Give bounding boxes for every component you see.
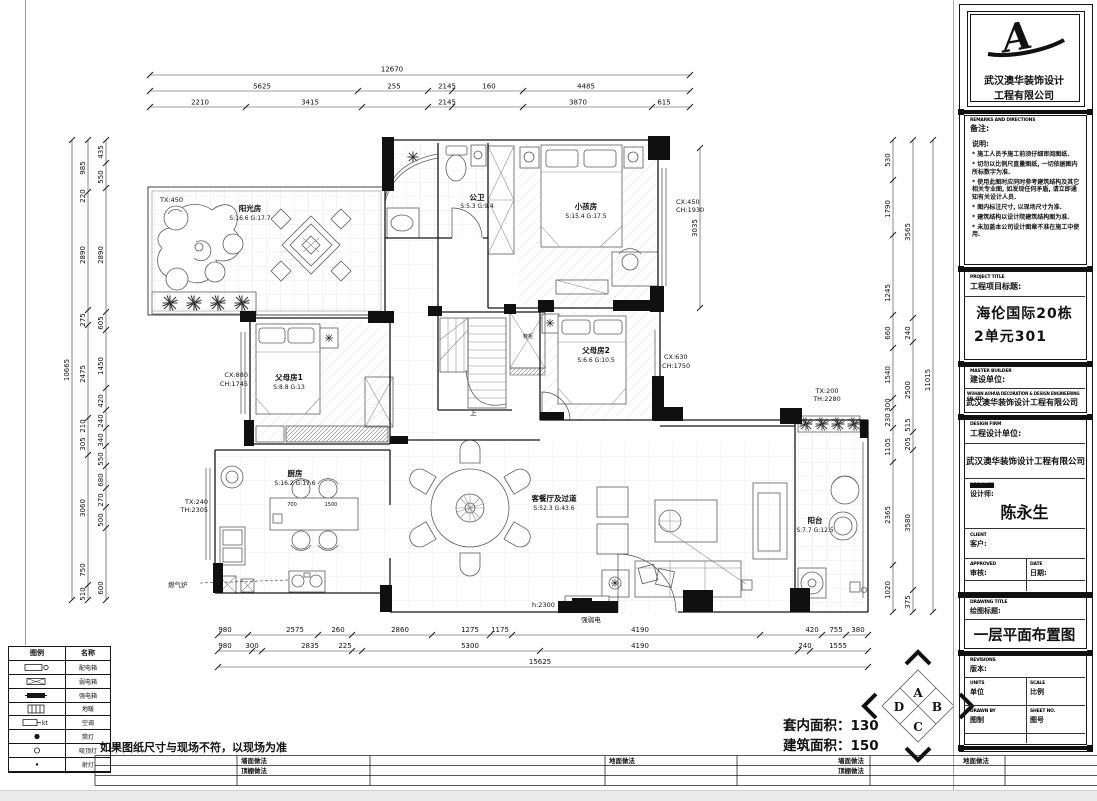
dim: 550 xyxy=(97,452,105,465)
bar-end xyxy=(1087,361,1093,367)
bar-end xyxy=(1087,650,1093,656)
dim: 1555 xyxy=(829,642,847,650)
legend-symbol-grid xyxy=(9,703,66,717)
sheet-en: SHEET NO. xyxy=(1030,709,1055,714)
dim: 3580 xyxy=(904,514,912,532)
dim: 4485 xyxy=(577,83,595,91)
date-label: 日期: xyxy=(1030,568,1047,578)
drawn-en: DRAWN BY xyxy=(970,709,996,714)
dim: 2475 xyxy=(79,365,87,383)
dim: 3565 xyxy=(904,223,912,241)
dim: 275 xyxy=(79,313,87,326)
dim: 420 xyxy=(97,394,105,407)
room-parents1-area: S:8.8 G:13 xyxy=(273,384,305,391)
scale-label: 比例 xyxy=(1030,687,1044,697)
rule xyxy=(964,296,1085,297)
dim: 510 xyxy=(79,587,87,600)
dim: 980 xyxy=(218,626,231,634)
shoe-cabinet-label: 鞋柜 xyxy=(523,333,533,340)
dim: 375 xyxy=(904,595,912,608)
legend-name: 射灯 xyxy=(66,758,110,772)
room-balcony-area: S:7.7 G:12.5 xyxy=(796,527,833,534)
dim: 2890 xyxy=(79,246,87,264)
dim: 240 xyxy=(904,326,912,339)
designer-name: 陈永生 xyxy=(964,499,1085,523)
approved-label: 审核: xyxy=(970,568,987,578)
dim: 160 xyxy=(482,83,495,91)
dim: 2145 xyxy=(438,99,456,107)
net-area-text: 套内面积：130 xyxy=(783,717,879,734)
room-living-area: S:52.3 G:43.6 xyxy=(533,505,574,512)
legend-name: 地暖 xyxy=(66,703,110,717)
dim: 2365 xyxy=(884,506,892,524)
legend-symbol-box-x xyxy=(9,675,66,689)
units-label: 单位 xyxy=(970,687,984,697)
dim-island-length: 1500 xyxy=(325,502,338,508)
approved-en: APPROVED xyxy=(970,562,996,567)
note-item: * 施工人员予施工前须仔细审阅图纸. xyxy=(972,151,1082,159)
dim: 340 xyxy=(97,433,105,446)
legend-name: 配电箱 xyxy=(66,661,110,675)
area-summary: 套内面积：130 建筑面积：150 xyxy=(782,717,879,754)
compass-letter-c: C xyxy=(913,720,923,734)
dim: 210 xyxy=(79,419,87,432)
legend-header-name: 名称 xyxy=(66,647,110,661)
project-en: PROJECT TITLE xyxy=(970,275,1004,280)
dim: 260 xyxy=(331,626,344,634)
room-kids-area: S:15.4 G:17.5 xyxy=(565,213,606,220)
room-sunroom-area: S:16.6 G:17.7 xyxy=(229,215,270,222)
dim: 1540 xyxy=(884,366,892,384)
dim: 3870 xyxy=(569,99,587,107)
dim: 1105 xyxy=(884,438,892,456)
room-balcony-name: 阳台 xyxy=(808,515,823,525)
company-name-line2: 工程有限公司 xyxy=(968,87,1080,102)
balcony-window-th: TH:2280 xyxy=(812,395,841,403)
cell-divider xyxy=(1026,558,1027,591)
gross-area-text: 建筑面积：150 xyxy=(782,737,879,754)
rule xyxy=(964,478,1085,479)
door-height-label: h:2300 xyxy=(532,601,555,609)
kids-window-ch: CH:1930 xyxy=(676,206,704,214)
dim: 2500 xyxy=(904,381,912,399)
drawing-sheet: 12670 5625 255 2145 160 4485 2210 3415 2… xyxy=(0,0,1097,801)
dim: 2860 xyxy=(391,626,409,634)
dim: 500 xyxy=(97,513,105,526)
dim: 2835 xyxy=(301,642,319,650)
dimension-text-top: 12670 5625 255 2145 160 4485 2210 3415 2… xyxy=(191,66,671,107)
legend-name: 弱电箱 xyxy=(66,675,110,689)
elec-box-label: 强弱电 xyxy=(581,615,601,624)
dim: 380 xyxy=(851,626,864,634)
design-label: 工程设计单位: xyxy=(970,428,1021,439)
rule xyxy=(964,705,1085,706)
revisions-label: 版本: xyxy=(970,664,987,674)
divider-bar xyxy=(962,746,1089,750)
room-sunroom-name: 阳光房 xyxy=(239,203,262,213)
compass-letter-b: B xyxy=(932,700,942,714)
site-note: 如果图纸尺寸与现场不符，以现场为准 xyxy=(100,739,287,755)
drawing-title: 一层平面布置图 xyxy=(964,624,1085,645)
dim: 2145 xyxy=(438,83,456,91)
dim: 1275 xyxy=(461,626,479,634)
legend-symbol-dot-filled xyxy=(9,730,66,744)
dim: 530 xyxy=(884,153,892,166)
kitchen-window-th: TH:2305 xyxy=(179,506,208,514)
dim: 5300 xyxy=(461,642,479,650)
room-kids-name: 小孩房 xyxy=(575,201,598,211)
legend-symbol-kt: kt xyxy=(9,716,66,730)
dim-left-total: 10665 xyxy=(63,359,71,381)
compass-letter-a: A xyxy=(912,686,923,700)
room-parents2-name: 父母房2 xyxy=(581,345,610,355)
dim: 605 xyxy=(97,316,105,329)
hall-closet xyxy=(488,146,514,254)
dim: 300 xyxy=(884,398,892,411)
orientation-compass: A B C D xyxy=(864,652,972,760)
dim: 3060 xyxy=(79,499,87,517)
dim: 3415 xyxy=(301,99,319,107)
window-chrome-bar xyxy=(0,790,1097,801)
floorplan-canvas: 12670 5625 255 2145 160 4485 2210 3415 2… xyxy=(0,0,1097,801)
note-item: * 建筑结构以设计院建筑结构图为准. xyxy=(972,214,1082,222)
dim: 230 xyxy=(884,413,892,426)
dim: 1450 xyxy=(97,357,105,375)
builder-name: 武汉澳华装饰设计工程有限公司 xyxy=(966,397,1078,408)
dim: 225 xyxy=(338,642,351,650)
staircase xyxy=(440,312,545,408)
dim: 435 xyxy=(97,145,105,158)
rule xyxy=(964,558,1085,559)
dim: 985 xyxy=(79,161,87,174)
legend-symbol-panel xyxy=(9,661,66,675)
scale-en: SCALE xyxy=(1030,681,1045,686)
rule xyxy=(964,580,1085,581)
rule xyxy=(964,733,1085,734)
notes-list: * 施工人员予施工前须仔细审阅图纸. * 切勿以比例尺直量图纸, 一切依据图内所… xyxy=(972,151,1082,241)
room-kitchen-name: 厨房 xyxy=(288,468,303,478)
rule xyxy=(964,443,1085,444)
dim: 1020 xyxy=(884,581,892,599)
note-item: * 图内标注尺寸, 以现场尺寸为准. xyxy=(972,204,1082,212)
dim: 660 xyxy=(884,326,892,339)
dim: 240 xyxy=(97,414,105,427)
dim: 2575 xyxy=(286,626,304,634)
design-en: DESIGN FIRM xyxy=(970,422,1001,427)
dim: 680 xyxy=(97,473,105,486)
legend-name: 空调 xyxy=(66,716,110,730)
dim: 2890 xyxy=(97,246,105,264)
schedule-ceiling-label-2: 顶棚做法 xyxy=(838,766,865,775)
notes-title: 说明: xyxy=(972,139,989,149)
sunroom-window-tag: TX:450 xyxy=(159,196,183,204)
schedule-wall-label: 墙面做法 xyxy=(241,756,268,765)
parents2-window-ch: CH:1750 xyxy=(662,362,690,370)
dim: 240 xyxy=(798,642,811,650)
dim: 255 xyxy=(387,83,400,91)
room-bath-area: S:5.3 G:9.4 xyxy=(460,203,494,210)
drawing-label: 绘图标题: xyxy=(970,606,1001,616)
gas-stove-label: 燃气炉 xyxy=(168,580,188,589)
bar-end xyxy=(958,745,964,751)
note-item: * 切勿以比例尺直量图纸, 一切依据图内所标数字为准. xyxy=(972,161,1082,176)
parents2-window-cx: CX:630 xyxy=(664,353,688,361)
divider-bar xyxy=(962,110,1089,114)
room-bath-name: 公卫 xyxy=(470,193,485,202)
note-item: * 使用此图时应同时参考建筑结构及其它相关专业图, 如发现任何矛盾, 请立即通知… xyxy=(972,179,1082,202)
dim: 600 xyxy=(97,581,105,594)
dim: 755 xyxy=(829,626,842,634)
dim: 1790 xyxy=(884,200,892,218)
balcony-window-tx: TX:200 xyxy=(814,387,838,395)
dim-top-total: 12670 xyxy=(381,66,403,74)
dim: 1245 xyxy=(884,284,892,302)
dim: 615 xyxy=(657,99,670,107)
units-en: UNITS xyxy=(970,681,984,686)
legend-table: 图例 名称 配电箱 弱电箱 强电箱 地暖 kt 空调 筒灯 吸顶灯 射灯 xyxy=(8,646,111,773)
room-living-name: 客餐厅及过道 xyxy=(531,493,577,503)
rule xyxy=(964,677,1085,678)
dim: 980 xyxy=(218,642,231,650)
legend-symbol-dot-small xyxy=(9,758,66,772)
dim: 420 xyxy=(805,626,818,634)
dim: 270 xyxy=(97,493,105,506)
sheet-label: 图号 xyxy=(1030,715,1044,725)
legend-symbol-solid xyxy=(9,689,66,703)
room-parents2-area: S:6.6 G:10.5 xyxy=(577,357,614,364)
dim: 550 xyxy=(97,170,105,183)
legend-kt-text: kt xyxy=(42,720,48,727)
dimension-text-left: 10665 985 220 2890 275 2475 210 305 3060… xyxy=(63,145,105,600)
dim: 4190 xyxy=(631,626,649,634)
parents1-window-ch: CH:1745 xyxy=(220,380,248,388)
note-item: * 未加盖本公司设计图章不准在施工中使用. xyxy=(972,224,1082,239)
parents1-window-cx: CX:880 xyxy=(224,371,248,379)
dim: 750 xyxy=(79,563,87,576)
dim: 5625 xyxy=(253,83,271,91)
dim: 205 xyxy=(904,437,912,450)
dim: 4190 xyxy=(631,642,649,650)
kids-window-cx: CX:450 xyxy=(676,198,700,206)
dim: 220 xyxy=(79,189,87,202)
dim-kids-height: 3035 xyxy=(691,219,699,237)
room-kitchen-area: S:16.2 G:17.6 xyxy=(274,480,315,487)
title-block: A 武汉澳华装饰设计 工程有限公司 REMARKS AND DIRECTIONS… xyxy=(958,0,1097,790)
rule xyxy=(964,619,1085,620)
bar-end xyxy=(1087,266,1093,272)
dim: 515 xyxy=(904,418,912,431)
dim: 1175 xyxy=(491,626,509,634)
client-label: 客户: xyxy=(970,539,987,549)
legend-symbol-dot-open xyxy=(9,744,66,758)
revisions-en: REVISIONS xyxy=(970,658,996,663)
builder-label: 建设单位: xyxy=(970,374,1005,385)
remarks-label: 备注: xyxy=(970,123,989,134)
legend-name: 强电箱 xyxy=(66,689,110,703)
compass-letter-d: D xyxy=(894,700,904,714)
designer-label: 设计师: xyxy=(970,489,994,499)
dim: 300 xyxy=(245,642,258,650)
company-name-line1: 武汉澳华装饰设计 xyxy=(968,72,1080,87)
client-en: CLIENT xyxy=(970,533,987,538)
kitchen-window-tx: TX:240 xyxy=(184,498,208,506)
rule xyxy=(964,388,1085,389)
dim: 305 xyxy=(79,437,87,450)
stairs-up-label: 上 xyxy=(470,408,477,417)
project-name-line1: 海伦国际20栋 xyxy=(964,303,1085,323)
rule xyxy=(964,528,1085,529)
designer-en: DESIGNER xyxy=(970,483,994,488)
project-name-line2: 2单元301 xyxy=(974,326,1047,346)
design-name: 武汉澳华装饰设计工程有限公司 xyxy=(966,455,1085,467)
drawing-en: DRAWING TITLE xyxy=(970,600,1007,605)
room-parents1-name: 父母房1 xyxy=(274,372,303,382)
dim-bottom-total: 15625 xyxy=(529,658,551,666)
dim: 2210 xyxy=(191,99,209,107)
schedule-wall-label-2: 墙面做法 xyxy=(838,756,865,765)
logo-box: A 武汉澳华装饰设计 工程有限公司 xyxy=(967,11,1085,107)
logo-swash-icon xyxy=(986,38,1066,60)
dim-island-width: 700 xyxy=(287,502,297,508)
bar-end xyxy=(1087,109,1093,115)
dim-right-total: 11015 xyxy=(924,369,932,391)
legend-header-symbol: 图例 xyxy=(9,647,66,661)
bar-end xyxy=(1087,414,1093,420)
date-en: DATE xyxy=(1030,562,1042,567)
bar-end xyxy=(1087,592,1093,598)
project-label: 工程项目标题: xyxy=(970,281,1021,292)
schedule-floor-label: 地面做法 xyxy=(609,756,636,765)
drawn-label: 图制 xyxy=(970,715,984,725)
bar-end xyxy=(1087,745,1093,751)
schedule-ceiling-label: 顶棚做法 xyxy=(241,766,268,775)
